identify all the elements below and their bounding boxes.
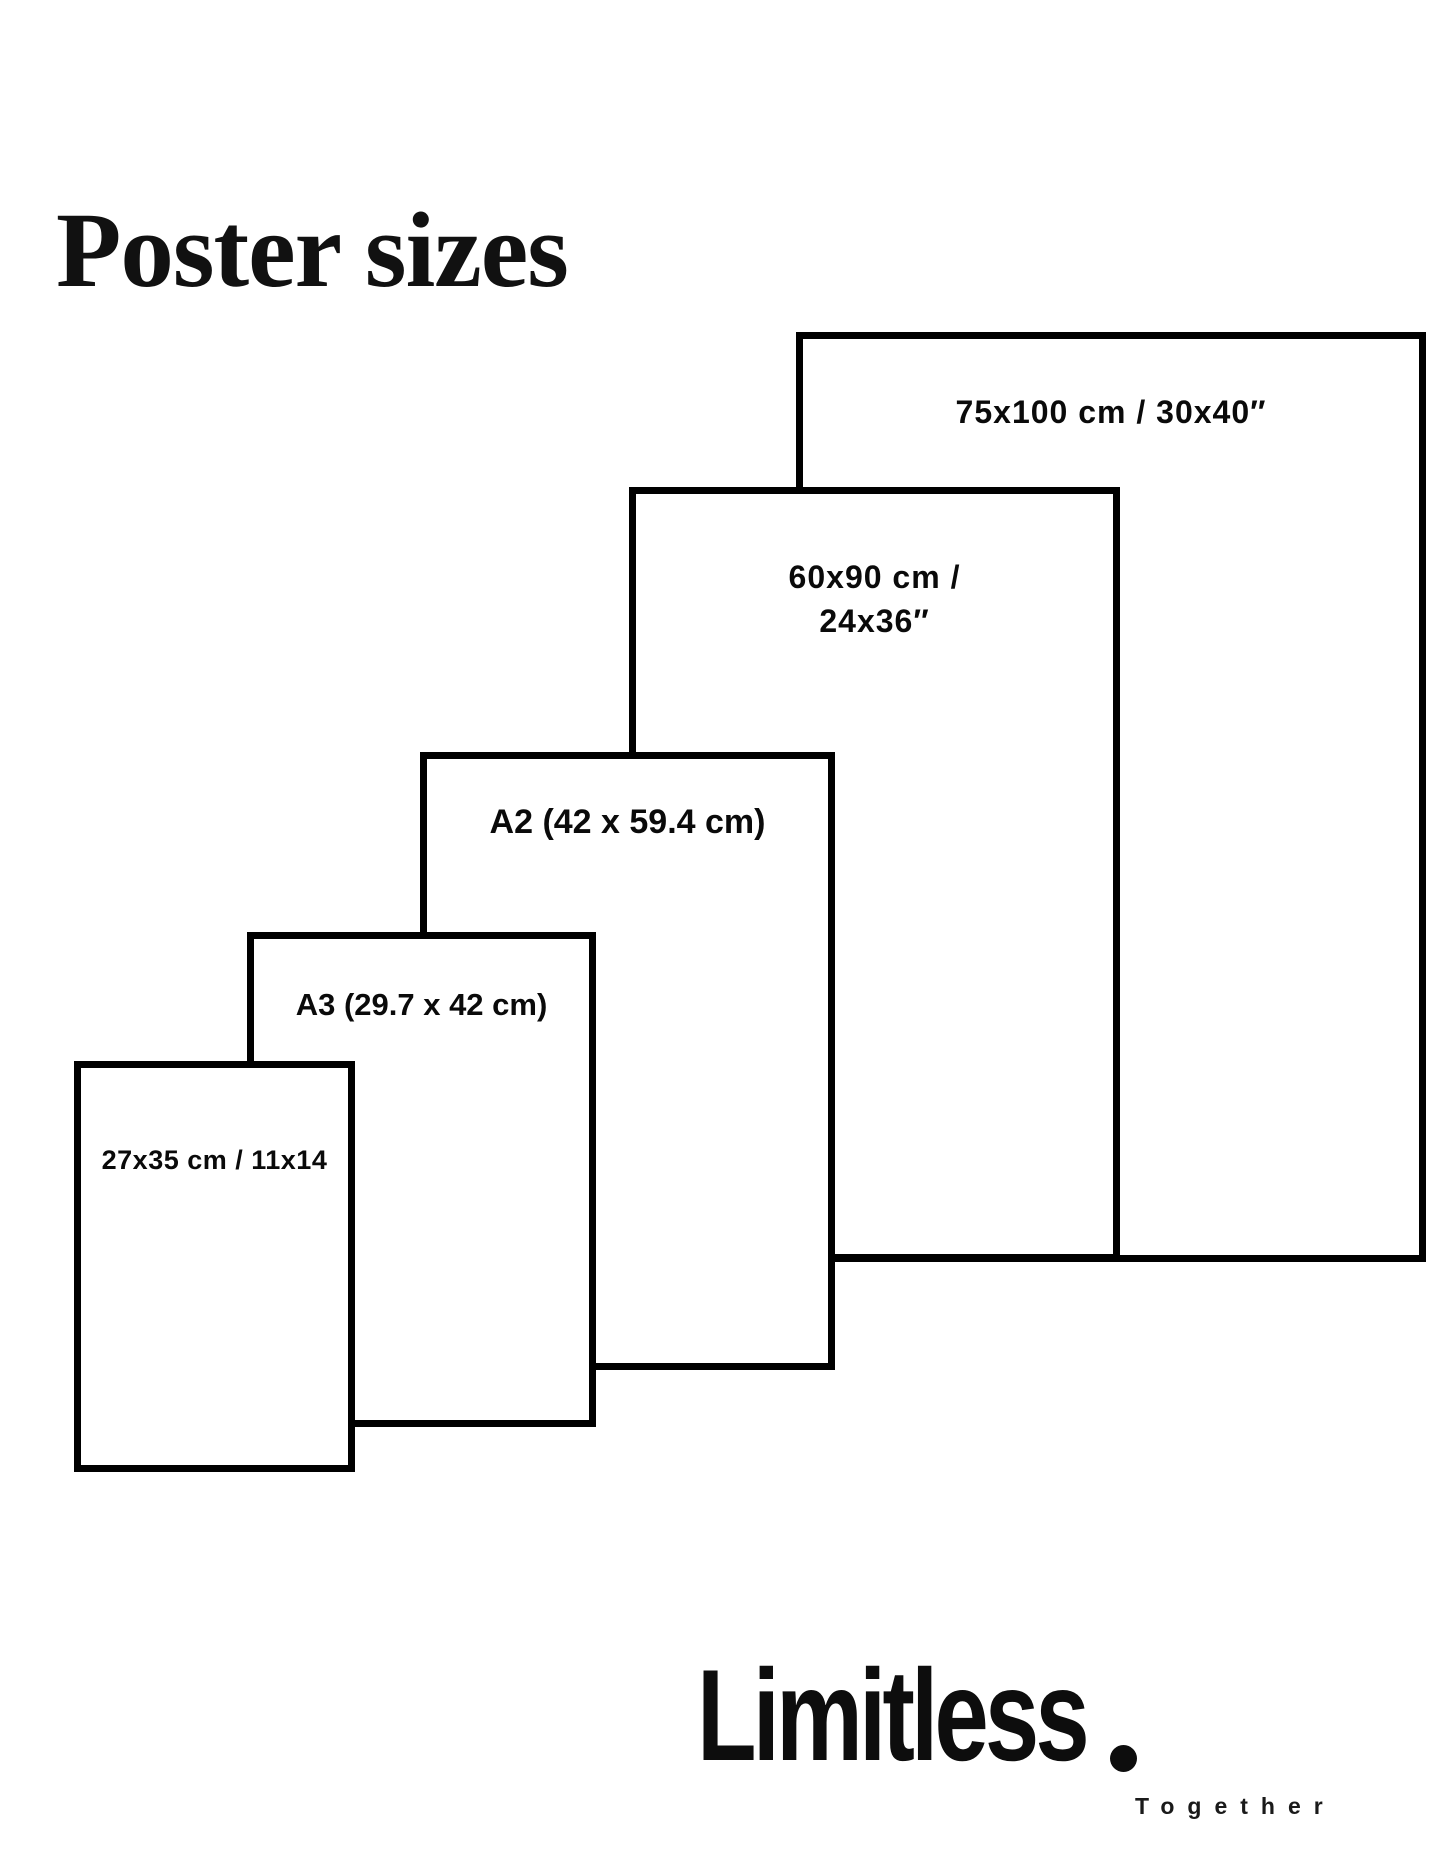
brand-tagline: Together <box>1135 1793 1336 1820</box>
brand-logo: Limitless <box>697 1650 1086 1780</box>
poster-sizes-infographic: Poster sizes 75x100 cm / 30x40″ 60x90 cm… <box>0 0 1445 1871</box>
page-title: Poster sizes <box>56 198 568 305</box>
size-label-75x100: 75x100 cm / 30x40″ <box>803 393 1419 431</box>
logo-period-dot-icon <box>1110 1745 1137 1772</box>
size-label-60x90-line2: 24x36″ <box>636 599 1113 643</box>
size-label-60x90-line1: 60x90 cm / <box>636 555 1113 599</box>
size-label-60x90: 60x90 cm / 24x36″ <box>636 555 1113 643</box>
size-label-27x35: 27x35 cm / 11x14 <box>81 1143 348 1177</box>
size-label-a3: A3 (29.7 x 42 cm) <box>254 986 589 1024</box>
size-label-a2: A2 (42 x 59.4 cm) <box>427 802 828 842</box>
size-box-27x35: 27x35 cm / 11x14 <box>74 1061 355 1472</box>
